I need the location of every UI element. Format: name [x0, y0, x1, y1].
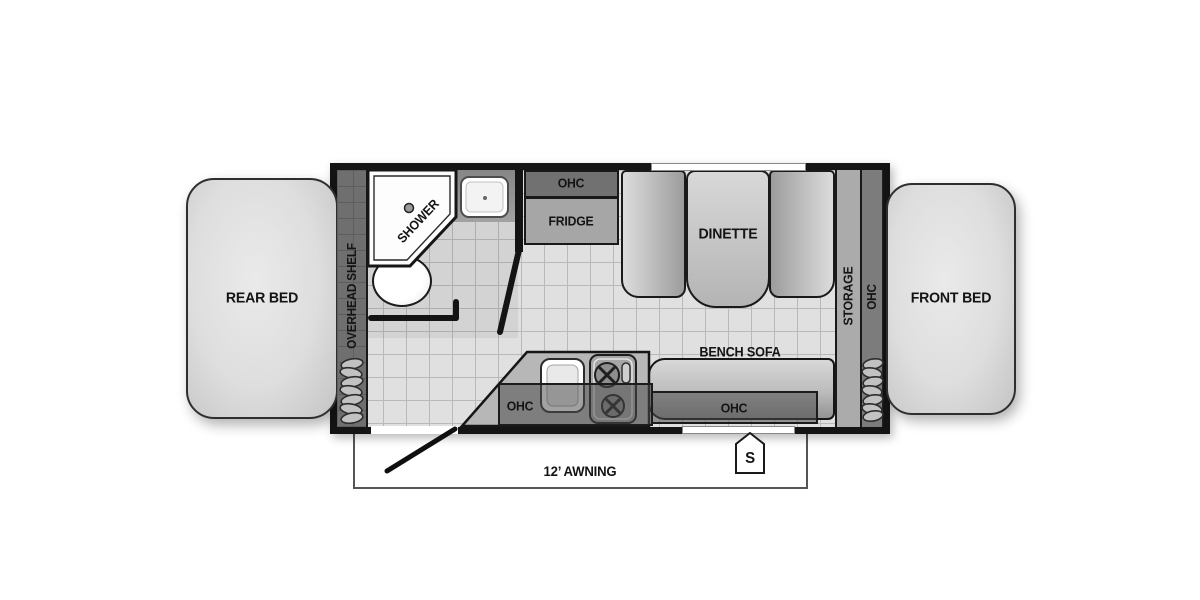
bath-sink [461, 177, 508, 217]
rear-slide-spring-icon [339, 357, 363, 425]
fridge-label: FRIDGE [548, 214, 593, 229]
fixtures-layer [0, 0, 1200, 600]
awning-label: 12’ AWNING [544, 463, 617, 479]
floorplan-canvas: REAR BED FRONT BED OVERHEAD SHELF SHOWER… [0, 0, 1200, 600]
front-ohc-label: OHC [865, 284, 879, 310]
front-bed-label: FRONT BED [911, 290, 992, 307]
dinette-label: DINETTE [698, 226, 757, 243]
kitchen-ohc-label: OHC [507, 399, 534, 414]
entry-door-swing [380, 425, 470, 480]
window-top [651, 163, 806, 171]
rear-bed-label: REAR BED [226, 290, 298, 307]
ohc-top-label: OHC [558, 176, 585, 191]
shower-drain-icon [405, 204, 414, 213]
sofa-ohc-label: OHC [721, 401, 748, 416]
storage-label: STORAGE [841, 267, 856, 326]
front-slide-spring-icon [861, 357, 883, 422]
overhead-shelf-label: OVERHEAD SHELF [345, 243, 359, 349]
spare-badge-label: S [745, 450, 755, 468]
bench-sofa-label: BENCH SOFA [699, 345, 780, 360]
